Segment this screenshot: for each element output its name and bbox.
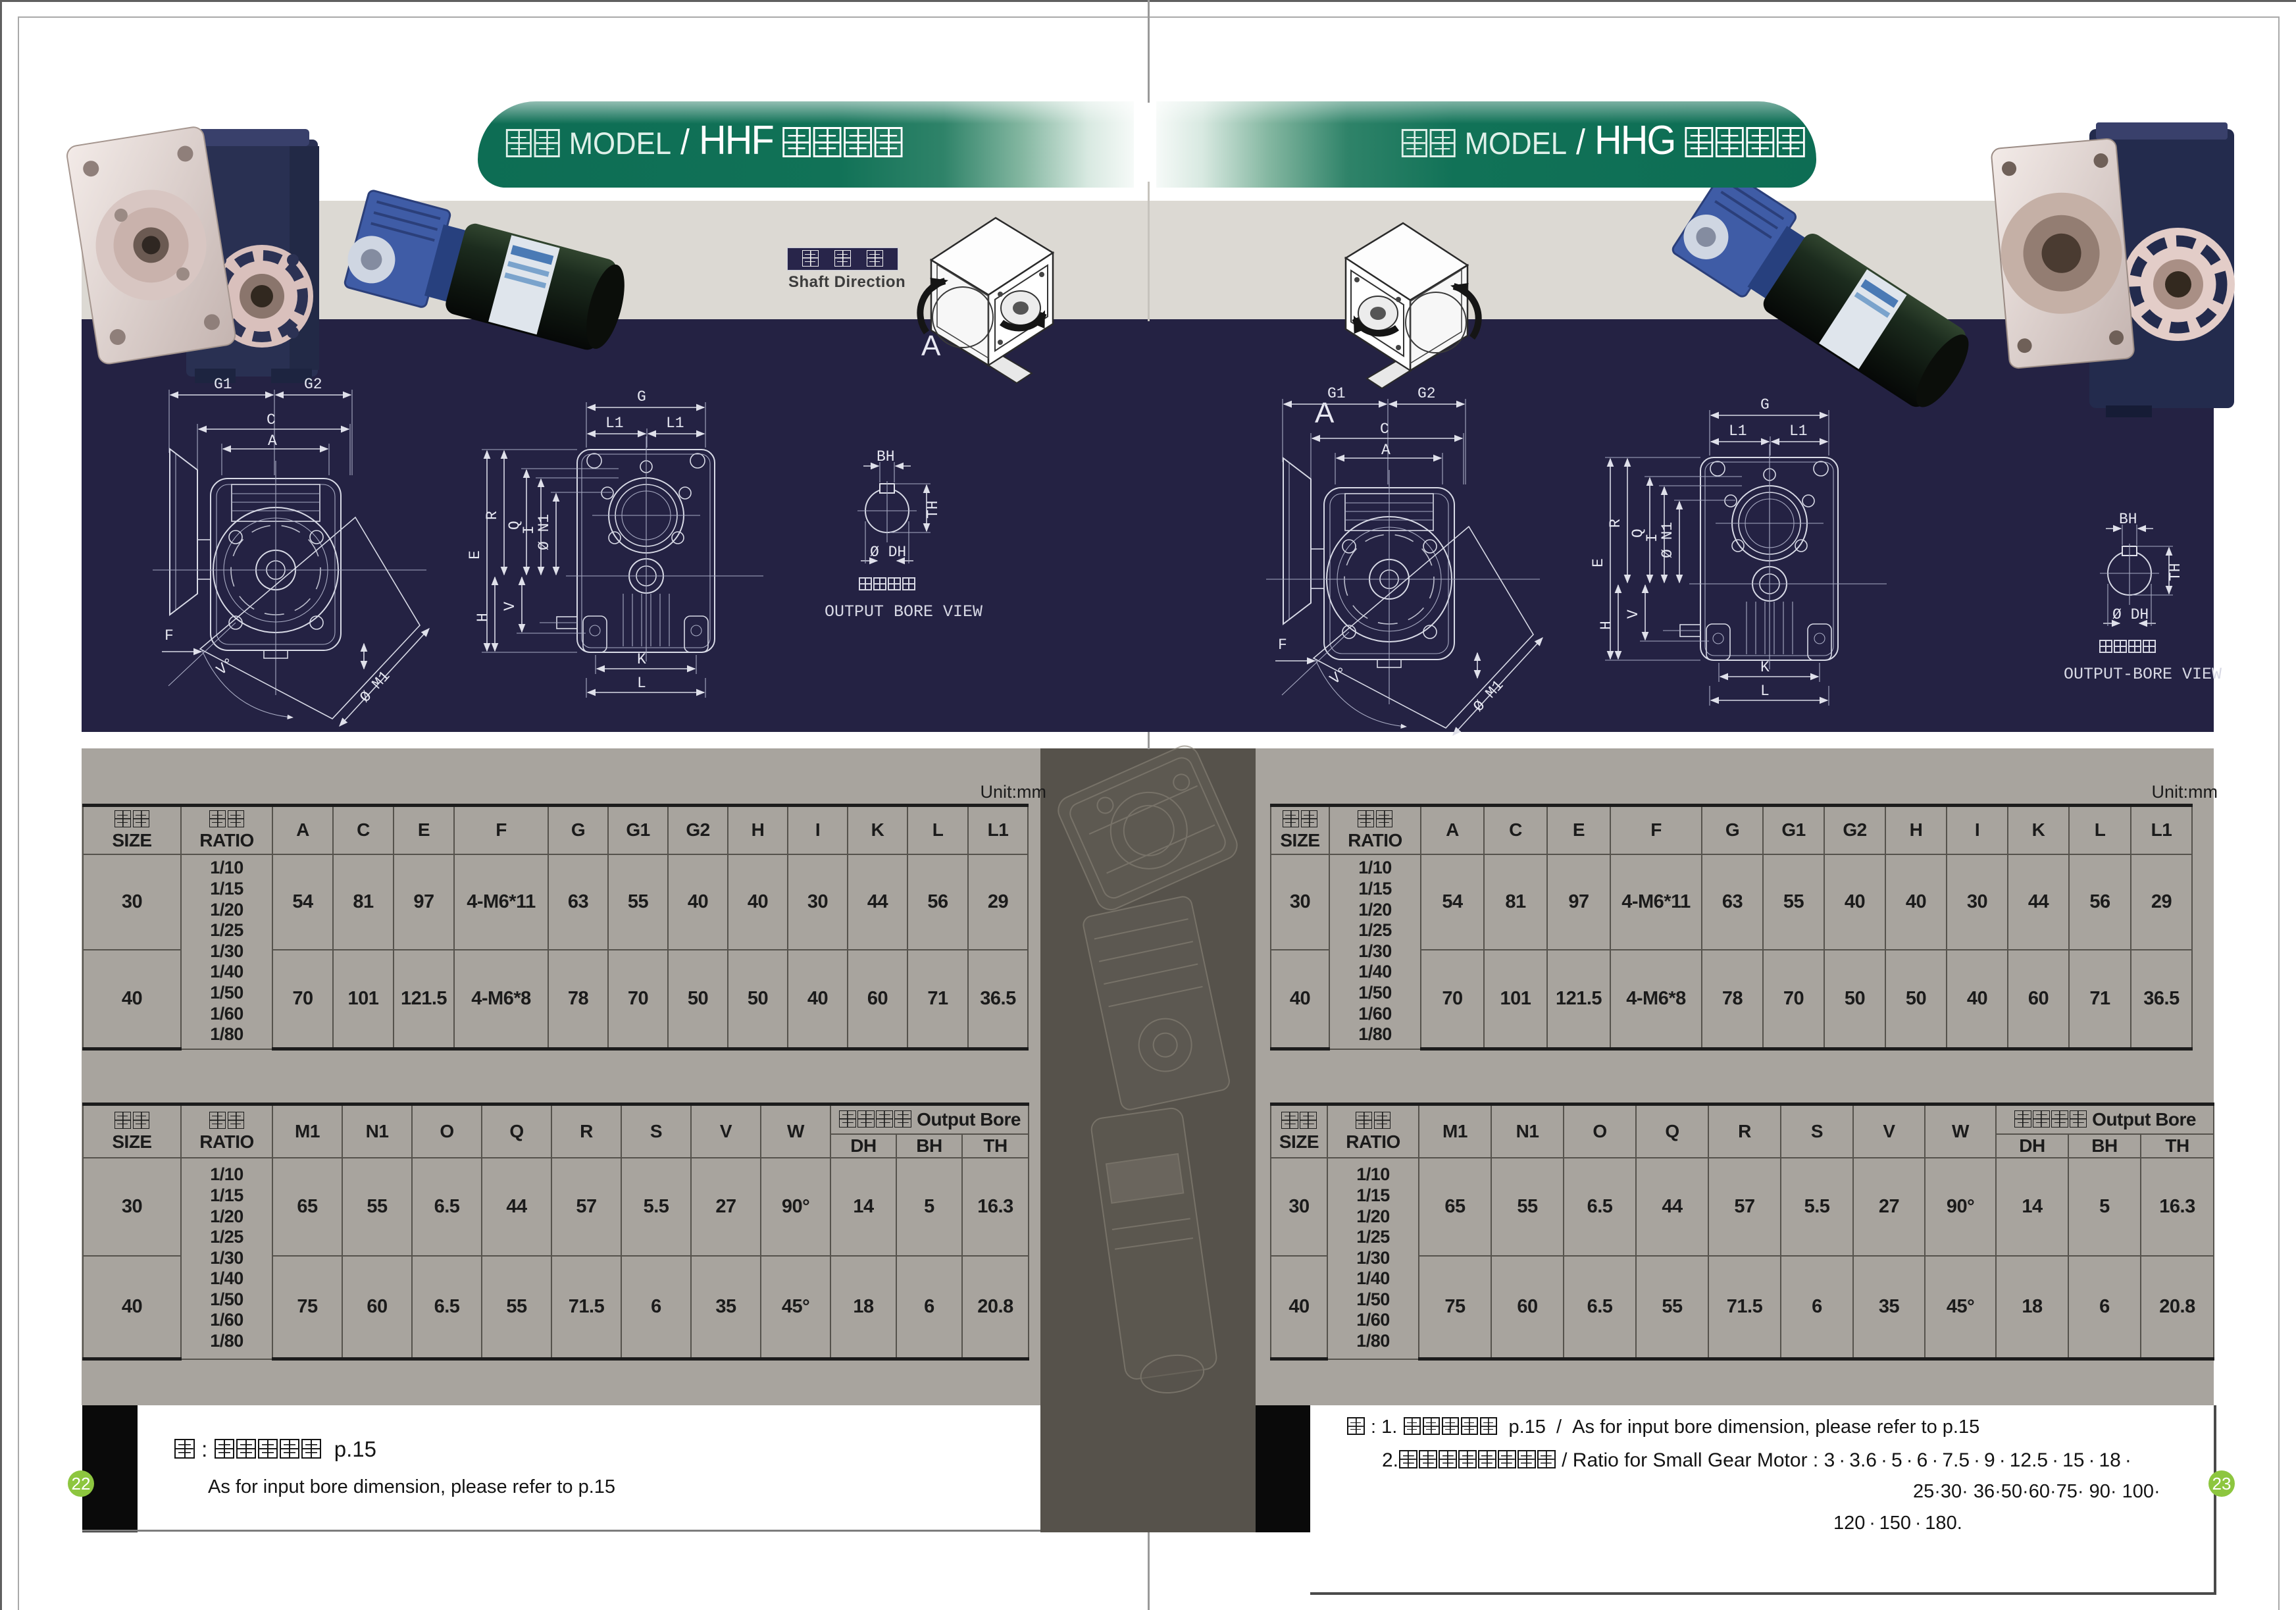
svg-text:G2: G2 xyxy=(304,376,322,393)
svg-text:E: E xyxy=(467,550,484,559)
svg-text:K: K xyxy=(637,651,646,668)
svg-text:Ø N1: Ø N1 xyxy=(536,514,553,550)
svg-text:A: A xyxy=(268,432,277,450)
svg-text:L: L xyxy=(637,675,646,692)
svg-text:TH: TH xyxy=(925,500,942,519)
svg-text:V: V xyxy=(501,602,519,611)
svg-text:G1: G1 xyxy=(214,376,232,393)
svg-text:F: F xyxy=(165,627,174,644)
svg-text:OUTPUT BORE VIEW: OUTPUT BORE VIEW xyxy=(825,602,982,621)
svg-text:OUTPUT-BORE VIEW: OUTPUT-BORE VIEW xyxy=(2064,665,2222,684)
svg-text:L1: L1 xyxy=(605,415,624,432)
svg-text:H: H xyxy=(474,613,492,622)
svg-text:Ø DH: Ø DH xyxy=(870,544,906,561)
svg-text:R: R xyxy=(484,511,501,520)
svg-text:C: C xyxy=(267,411,276,428)
svg-text:BH: BH xyxy=(877,448,895,465)
svg-text:L1: L1 xyxy=(666,415,684,432)
svg-text:G: G xyxy=(637,388,646,405)
svg-text:A: A xyxy=(921,330,941,362)
